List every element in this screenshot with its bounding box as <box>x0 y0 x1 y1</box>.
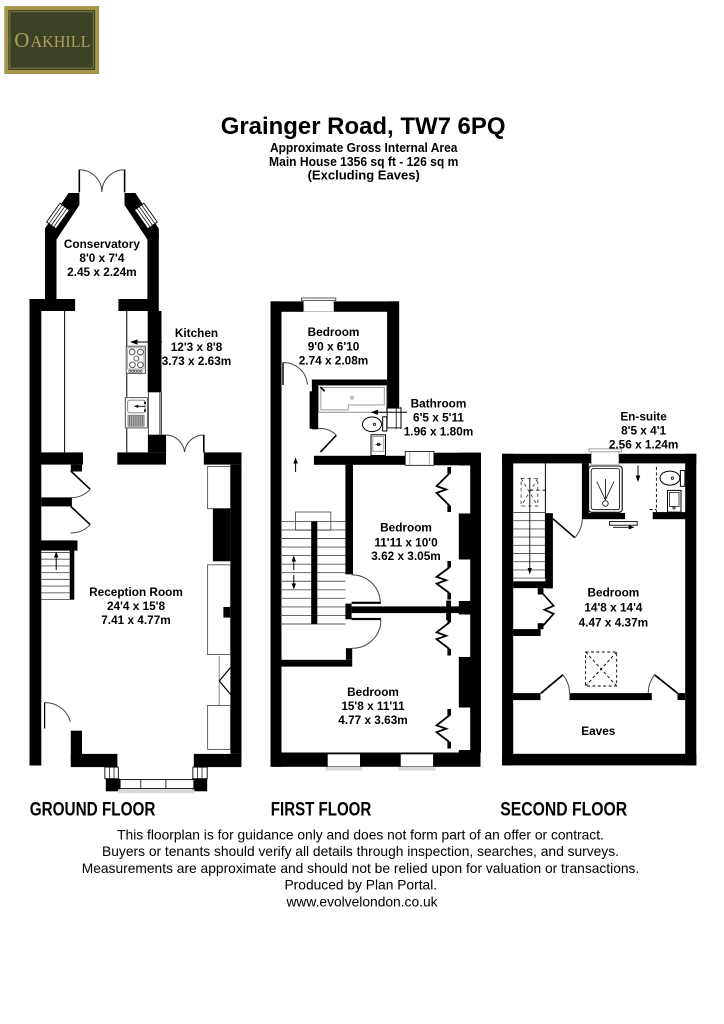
svg-text:1.96 x 1.80m: 1.96 x 1.80m <box>404 424 474 438</box>
svg-text:Eaves: Eaves <box>581 724 616 738</box>
svg-text:This floorplan is for guidance: This floorplan is for guidance only and … <box>117 827 604 842</box>
svg-text:Conservatory: Conservatory <box>64 237 140 251</box>
svg-text:11'11 x 10'0: 11'11 x 10'0 <box>374 535 438 549</box>
svg-text:Bedroom: Bedroom <box>588 585 640 599</box>
svg-text:Kitchen: Kitchen <box>175 326 218 340</box>
svg-text:Reception Room: Reception Room <box>89 585 183 599</box>
svg-text:www.evolvelondon.co.uk: www.evolvelondon.co.uk <box>285 894 437 909</box>
svg-text:AKHILL: AKHILL <box>31 32 91 51</box>
svg-text:Grainger Road, TW7 6PQ: Grainger Road, TW7 6PQ <box>221 113 506 140</box>
svg-text:FIRST FLOOR: FIRST FLOOR <box>271 799 372 820</box>
svg-text:SECOND FLOOR: SECOND FLOOR <box>500 799 627 820</box>
svg-text:(Excluding Eaves): (Excluding Eaves) <box>308 169 420 183</box>
svg-text:4.47 x 4.37m: 4.47 x 4.37m <box>579 616 649 630</box>
svg-text:En-suite: En-suite <box>620 409 667 423</box>
svg-text:8'5 x 4'1: 8'5 x 4'1 <box>621 423 666 437</box>
svg-text:3.73 x 2.63m: 3.73 x 2.63m <box>162 354 232 368</box>
svg-text:Bathroom: Bathroom <box>411 397 467 411</box>
svg-text:GROUND FLOOR: GROUND FLOOR <box>30 799 156 820</box>
svg-text:12'3 x 8'8: 12'3 x 8'8 <box>171 340 223 354</box>
svg-text:9'0 x 6'10: 9'0 x 6'10 <box>308 340 360 354</box>
svg-text:Bedroom: Bedroom <box>308 325 360 339</box>
svg-text:8'0 x 7'4: 8'0 x 7'4 <box>79 251 124 265</box>
svg-text:Produced by Plan Portal.: Produced by Plan Portal. <box>284 878 437 893</box>
svg-text:3.62 x 3.05m: 3.62 x 3.05m <box>371 549 441 563</box>
svg-text:15'8 x 11'11: 15'8 x 11'11 <box>341 699 405 713</box>
svg-text:7.41 x 4.77m: 7.41 x 4.77m <box>101 613 171 627</box>
svg-text:6'5 x 5'11: 6'5 x 5'11 <box>413 411 464 425</box>
svg-text:Buyers or tenants should verif: Buyers or tenants should verify all deta… <box>102 844 619 859</box>
svg-text:Measurements are approximate a: Measurements are approximate and should … <box>82 861 640 876</box>
svg-text:Main House 1356 sq ft - 126 sq: Main House 1356 sq ft - 126 sq m <box>269 155 458 169</box>
svg-text:2.74 x 2.08m: 2.74 x 2.08m <box>299 353 369 367</box>
svg-text:Bedroom: Bedroom <box>347 685 399 699</box>
svg-text:Approximate Gross Internal Are: Approximate Gross Internal Area <box>270 141 458 155</box>
svg-text:2.45 x 2.24m: 2.45 x 2.24m <box>67 265 137 279</box>
svg-text:Bedroom: Bedroom <box>380 520 432 534</box>
svg-text:24'4 x 15'8: 24'4 x 15'8 <box>107 599 166 613</box>
svg-text:4.77 x 3.63m: 4.77 x 3.63m <box>338 713 408 727</box>
svg-text:14'8 x 14'4: 14'8 x 14'4 <box>584 601 643 615</box>
svg-text:O: O <box>14 28 29 52</box>
